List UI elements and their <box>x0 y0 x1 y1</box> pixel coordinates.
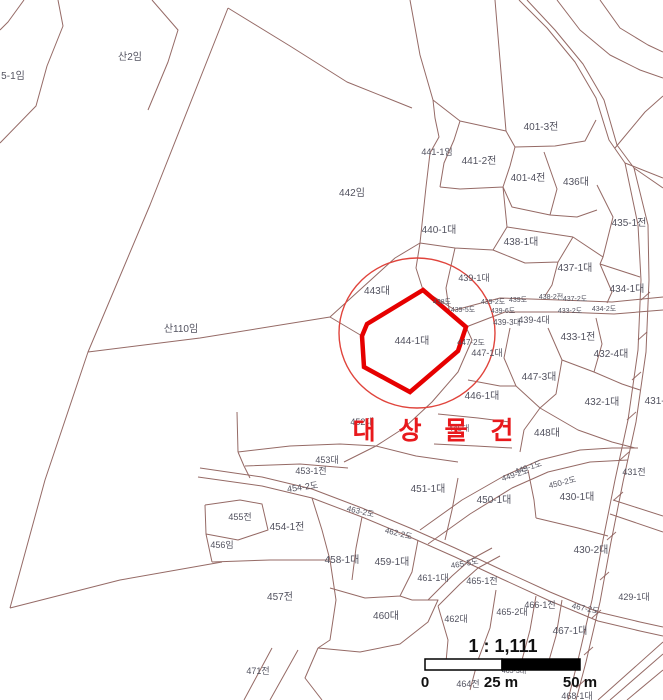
parcel-label: 468-1대 <box>561 691 592 700</box>
parcel-label: 437-1대 <box>558 262 593 274</box>
parcel-label: 440-1대 <box>422 224 457 236</box>
parcel-label: 산110임 <box>164 322 198 335</box>
parcel-label: 435-1전 <box>612 217 647 229</box>
parcel-label: 466-1전 <box>524 600 555 610</box>
parcel-label: 455전 <box>228 512 251 522</box>
parcel-label: 433-2도 <box>558 307 583 315</box>
parcel-label: 460대 <box>373 610 399 622</box>
parcel-label: 453-1전 <box>295 466 326 476</box>
cadastral-map[interactable]: 5-1임산2임442임산110임441-1임441-2전401-3전401-4전… <box>0 0 663 700</box>
parcel-label: 448대 <box>534 427 560 439</box>
parcel-label: 산2임 <box>118 50 142 63</box>
parcel-label: 433-1전 <box>561 331 596 343</box>
parcel-label: 447-3대 <box>522 371 557 383</box>
parcel-label: 454-2도 <box>286 480 318 494</box>
parcel-label: 430-2대 <box>574 544 609 556</box>
parcel-label: 441-1임 <box>421 146 452 157</box>
parcel-label: 438-1대 <box>504 236 539 248</box>
parcel-label: 431전 <box>622 467 645 477</box>
parcel-label: 451-1대 <box>411 483 446 495</box>
parcel-label: 434-2도 <box>592 305 617 313</box>
parcel-label: 450-1대 <box>477 494 512 506</box>
parcel-label: 439-3대 <box>493 318 521 327</box>
parcel-label: 432-1대 <box>585 396 620 408</box>
parcel-label: 429-1대 <box>618 592 649 602</box>
parcel-label: 5-1임 <box>1 69 25 82</box>
scale-mid: 25 m <box>484 674 518 691</box>
parcel-label: 438-2전 <box>539 292 563 301</box>
parcel-label: 467-1대 <box>553 625 588 637</box>
parcel-labels: 5-1임산2임442임산110임441-1임441-2전401-3전401-4전… <box>1 50 663 700</box>
parcel-label: 450-2도 <box>548 475 577 490</box>
parcel-label: 447-1대 <box>471 348 502 358</box>
parcel-label: 446-1대 <box>465 390 500 402</box>
scale-ratio: 1 : 1,111 <box>468 636 537 656</box>
parcel-label: 431-3대 <box>645 395 663 407</box>
parcel-label: 457전 <box>267 591 293 603</box>
parcel-label: 437-2도 <box>563 295 588 303</box>
parcel-label: 439-1대 <box>458 273 489 283</box>
parcel-label: 454-1전 <box>270 521 305 533</box>
parcel-label: 461-1대 <box>417 573 448 583</box>
parcel-label: 436대 <box>563 176 589 188</box>
parcel-label: 459-1대 <box>375 556 410 568</box>
parcel-label: 453대 <box>315 455 338 465</box>
parcel-label: 462대 <box>444 614 467 624</box>
scale-bar-left-segment <box>425 659 502 670</box>
parcel-label: 401-4전 <box>511 172 546 184</box>
parcel-label: 471전 <box>246 666 269 676</box>
parcel-label: 442임 <box>339 186 365 199</box>
scale-zero: 0 <box>421 674 429 691</box>
target-property-label: 대 상 물 건 <box>353 417 522 445</box>
parcel-label: 464전 <box>456 679 479 689</box>
parcel-label: 439-5도 <box>451 306 476 314</box>
parcel-label: 439-6도 <box>491 307 516 315</box>
parcel-label: 456임 <box>210 539 233 550</box>
parcel-label: 438도 <box>433 298 452 306</box>
parcel-label: 458-1대 <box>325 554 360 566</box>
parcel-label: 439-4대 <box>518 315 549 325</box>
parcel-label: 447-2도 <box>457 338 485 347</box>
parcel-label: 441-2전 <box>462 155 497 167</box>
parcel-label: 444-1대 <box>395 335 430 347</box>
parcel-label: 465-5도 <box>450 557 479 571</box>
parcel-label: 467-2도 <box>571 601 600 616</box>
parcel-label: 439도 <box>509 296 528 304</box>
scale-max: 50 m <box>563 674 597 691</box>
parcel-boundaries <box>0 0 663 700</box>
parcel-label: 430-1대 <box>560 491 595 503</box>
parcel-label: 434-1대 <box>610 283 645 295</box>
scale-bar-right-segment <box>502 659 580 670</box>
parcel-label: 443대 <box>364 285 390 297</box>
parcel-label: 401-3전 <box>524 121 559 133</box>
parcel-label: 465-2대 <box>496 607 527 617</box>
parcel-label: 462-2도 <box>384 526 413 541</box>
parcel-label: 432-4대 <box>594 348 629 360</box>
parcel-label: 439-2도 <box>481 298 506 306</box>
parcel-label: 465-1전 <box>466 576 497 586</box>
